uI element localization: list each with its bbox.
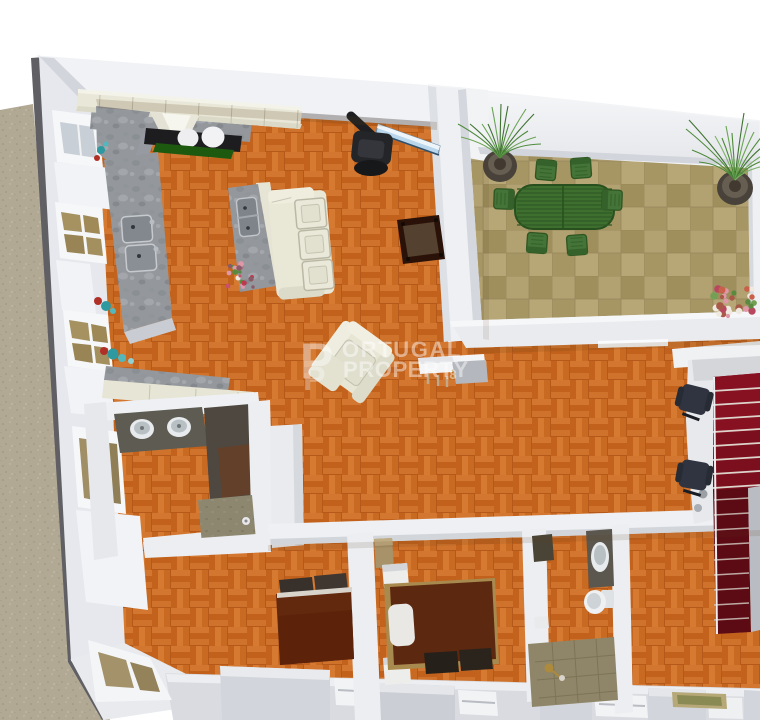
svg-text:P: P: [303, 360, 326, 398]
svg-text::8: :8: [445, 367, 457, 382]
